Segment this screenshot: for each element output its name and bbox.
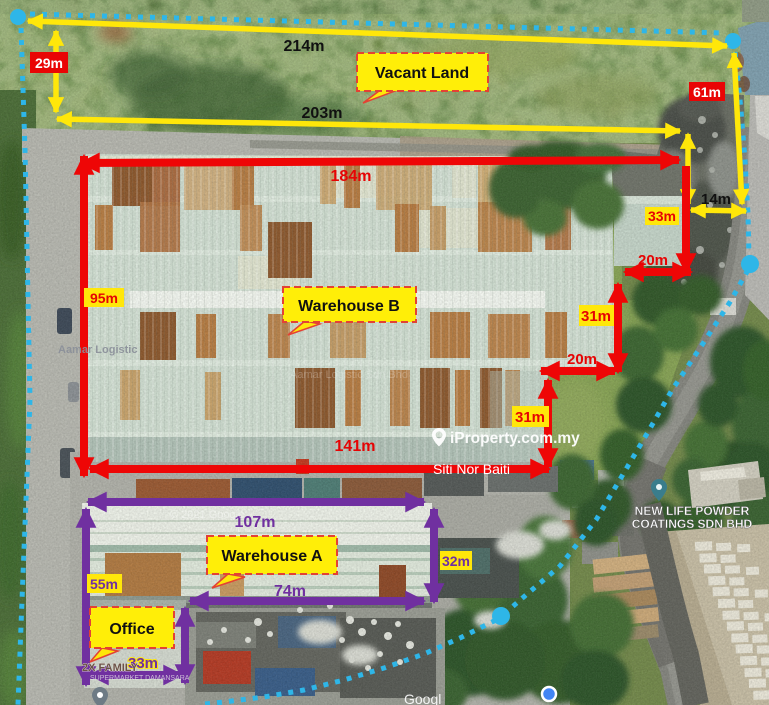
svg-text:184m: 184m	[331, 168, 372, 185]
svg-text:55m: 55m	[90, 576, 118, 592]
svg-text:74m: 74m	[274, 583, 306, 600]
svg-text:20m: 20m	[567, 351, 597, 368]
svg-text:214m: 214m	[284, 38, 325, 55]
svg-text:Googl: Googl	[404, 691, 441, 705]
svg-text:SUPERMARKET DAMANSARA: SUPERMARKET DAMANSARA	[90, 675, 190, 682]
svg-text:Siti Nor Baiti: Siti Nor Baiti	[433, 461, 510, 477]
svg-text:14m: 14m	[701, 191, 731, 208]
svg-text:2X FAMILY: 2X FAMILY	[82, 662, 138, 674]
svg-text:95m: 95m	[90, 290, 118, 306]
svg-text:31m: 31m	[515, 409, 545, 426]
svg-text:Aamar Logistic Sdn Bhd: Aamar Logistic Sdn Bhd	[290, 369, 408, 381]
svg-text:141m: 141m	[335, 438, 376, 455]
svg-text:31m: 31m	[581, 308, 611, 325]
svg-text:© 2021 Google: © 2021 Google	[170, 509, 244, 521]
svg-text:203m: 203m	[302, 105, 343, 122]
svg-text:29m: 29m	[35, 55, 63, 71]
svg-text:33m: 33m	[648, 208, 676, 224]
svg-text:iProperty.com.my: iProperty.com.my	[450, 430, 580, 447]
svg-text:32m: 32m	[442, 553, 470, 569]
svg-text:Vacant Land: Vacant Land	[375, 65, 469, 82]
svg-text:COATINGS SDN BHD: COATINGS SDN BHD	[632, 517, 753, 531]
svg-text:NEW LIFE POWDER: NEW LIFE POWDER	[635, 504, 750, 518]
svg-text:Warehouse B: Warehouse B	[298, 298, 400, 315]
svg-text:Office: Office	[109, 621, 154, 638]
svg-text:Warehouse A: Warehouse A	[221, 548, 323, 565]
svg-text:Aamar Logistic: Aamar Logistic	[58, 344, 137, 356]
svg-text:61m: 61m	[693, 84, 721, 100]
svg-text:20m: 20m	[638, 252, 668, 269]
